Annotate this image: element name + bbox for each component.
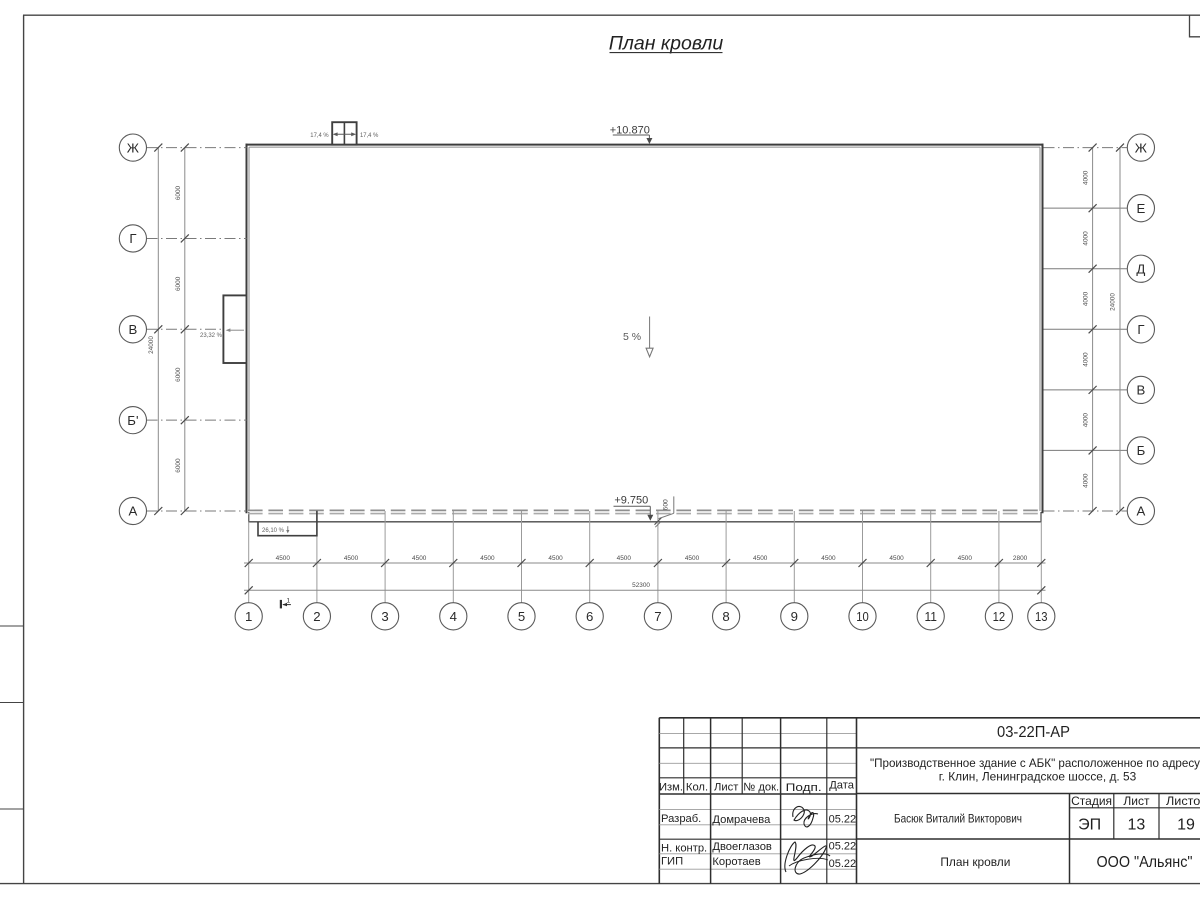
svg-text:4500: 4500 — [685, 555, 700, 562]
svg-text:4000: 4000 — [1082, 473, 1089, 488]
svg-text:19: 19 — [1177, 816, 1195, 833]
svg-text:4500: 4500 — [889, 555, 904, 562]
svg-text:4000: 4000 — [1082, 291, 1089, 306]
svg-text:5 %: 5 % — [623, 331, 641, 343]
svg-text:Е: Е — [1137, 201, 1146, 216]
svg-text:Дата: Дата — [829, 780, 855, 792]
svg-text:4500: 4500 — [753, 555, 768, 562]
svg-text:2: 2 — [313, 609, 320, 624]
svg-text:Д: Д — [1136, 261, 1145, 276]
svg-text:Двоеглазов: Двоеглазов — [712, 841, 772, 853]
svg-text:1: 1 — [286, 598, 290, 605]
svg-text:Лист: Лист — [714, 782, 738, 794]
svg-text:Ж: Ж — [127, 140, 139, 155]
svg-text:4500: 4500 — [276, 555, 291, 562]
svg-text:52300: 52300 — [632, 582, 650, 589]
svg-text:"Производственное здание с АБК: "Производственное здание с АБК" располож… — [870, 756, 1200, 770]
svg-text:26,10 %: 26,10 % — [262, 527, 284, 534]
svg-text:Домрачева: Домрачева — [712, 814, 771, 826]
svg-text:4000: 4000 — [1082, 231, 1089, 246]
svg-text:6000: 6000 — [175, 276, 182, 291]
svg-text:Г: Г — [129, 231, 136, 246]
svg-text:24000: 24000 — [1110, 293, 1117, 311]
svg-text:Б: Б — [1137, 443, 1146, 458]
svg-text:Лист: Лист — [1123, 794, 1150, 808]
svg-text:2800: 2800 — [1013, 555, 1028, 562]
svg-text:13: 13 — [1035, 609, 1048, 624]
svg-text:4500: 4500 — [617, 555, 632, 562]
svg-text:05.22: 05.22 — [829, 813, 857, 825]
svg-text:Ж: Ж — [1135, 140, 1147, 155]
svg-text:Листов: Листов — [1166, 794, 1200, 808]
svg-text:6: 6 — [586, 609, 593, 624]
svg-text:4500: 4500 — [344, 555, 359, 562]
svg-text:6000: 6000 — [175, 367, 182, 382]
svg-text:5: 5 — [518, 609, 525, 624]
svg-text:4500: 4500 — [821, 555, 836, 562]
svg-text:600: 600 — [663, 499, 670, 510]
svg-text:ЭП: ЭП — [1078, 816, 1101, 833]
svg-text:1: 1 — [245, 609, 252, 624]
svg-text:3: 3 — [381, 609, 388, 624]
svg-text:12: 12 — [993, 609, 1006, 624]
svg-text:4000: 4000 — [1082, 170, 1089, 185]
svg-text:11: 11 — [924, 609, 937, 624]
svg-text:Г: Г — [1137, 322, 1144, 337]
svg-text:А: А — [129, 504, 138, 519]
svg-text:А: А — [1137, 504, 1146, 519]
svg-text:Басюк Виталий Викторович: Басюк Виталий Викторович — [894, 812, 1022, 826]
svg-text:Кол.: Кол. — [686, 782, 708, 794]
svg-text:Изм.: Изм. — [659, 782, 683, 794]
svg-text:6000: 6000 — [175, 185, 182, 200]
svg-text:В: В — [1137, 383, 1146, 398]
svg-text:Подп.: Подп. — [786, 782, 822, 794]
svg-text:4: 4 — [450, 609, 457, 624]
svg-text:10: 10 — [856, 609, 869, 624]
svg-text:Н. контр.: Н. контр. — [661, 842, 707, 854]
svg-text:8: 8 — [722, 609, 729, 624]
svg-text:05.22: 05.22 — [829, 841, 857, 853]
svg-text:План кровли: План кровли — [609, 33, 724, 55]
svg-text:23,32 %: 23,32 % — [200, 332, 222, 339]
svg-text:4000: 4000 — [1082, 413, 1089, 428]
svg-text:13: 13 — [1128, 816, 1146, 833]
svg-text:В: В — [129, 322, 138, 337]
svg-text:4500: 4500 — [412, 555, 427, 562]
svg-text:№ док.: № док. — [743, 782, 779, 794]
svg-text:03-22П-АР: 03-22П-АР — [997, 724, 1070, 741]
svg-text:Стадия: Стадия — [1071, 794, 1112, 808]
svg-text:Б': Б' — [127, 413, 138, 428]
svg-text:План кровли: План кровли — [940, 855, 1010, 869]
svg-text:ООО "Альянс": ООО "Альянс" — [1097, 854, 1193, 871]
svg-text:4000: 4000 — [1082, 352, 1089, 367]
svg-text:17,4 %: 17,4 % — [310, 132, 329, 139]
svg-text:ГИП: ГИП — [661, 856, 683, 868]
svg-text:17,4 %: 17,4 % — [360, 132, 379, 139]
svg-text:Коротаев: Коротаев — [712, 856, 760, 868]
svg-text:4500: 4500 — [480, 555, 495, 562]
svg-text:9: 9 — [791, 609, 798, 624]
svg-text:6000: 6000 — [175, 458, 182, 473]
svg-text:+9.750: +9.750 — [614, 495, 648, 507]
svg-text:4500: 4500 — [958, 555, 973, 562]
svg-text:Разраб.: Разраб. — [661, 813, 701, 825]
svg-text:24000: 24000 — [148, 336, 155, 354]
svg-text:05.22: 05.22 — [829, 858, 857, 870]
svg-text:7: 7 — [654, 609, 661, 624]
svg-text:г. Клин, Ленинградское шоссе,: г. Клин, Ленинградское шоссе, д. 53 — [939, 770, 1137, 784]
svg-text:4500: 4500 — [548, 555, 563, 562]
